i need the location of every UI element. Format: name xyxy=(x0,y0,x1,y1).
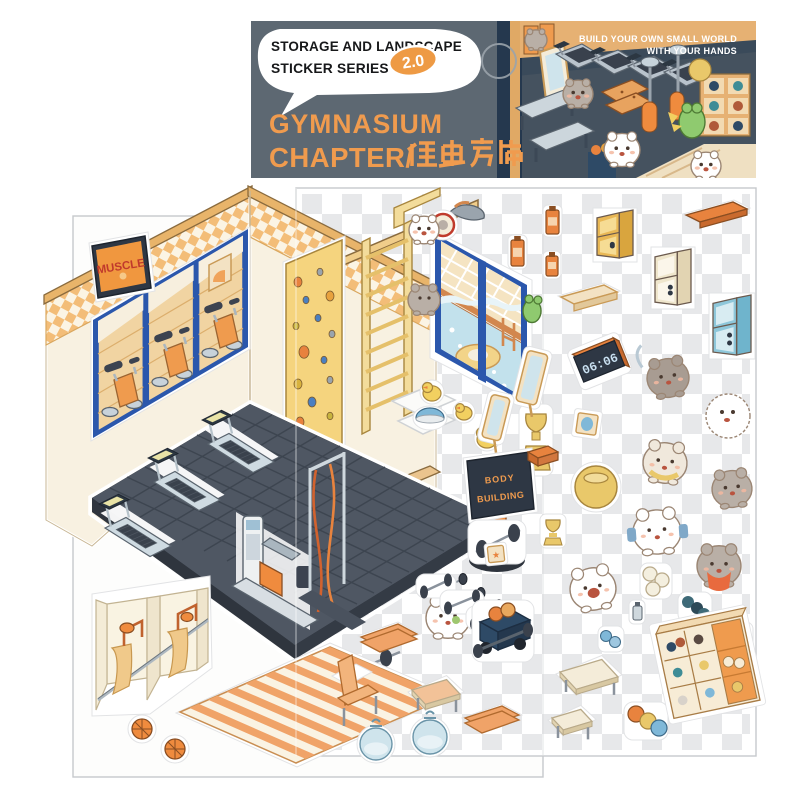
svg-text:BUILD YOUR OWN SMALL WORLD: BUILD YOUR OWN SMALL WORLD xyxy=(579,34,737,44)
svg-text:CHAPTER/: CHAPTER/ xyxy=(269,142,414,173)
svg-text:2.0: 2.0 xyxy=(401,52,426,72)
svg-text:STICKER SERIES: STICKER SERIES xyxy=(271,61,389,76)
svg-text:★: ★ xyxy=(492,550,501,561)
svg-text:WITH YOUR HANDS: WITH YOUR HANDS xyxy=(647,46,737,56)
svg-text:GYMNASIUM: GYMNASIUM xyxy=(269,109,443,139)
